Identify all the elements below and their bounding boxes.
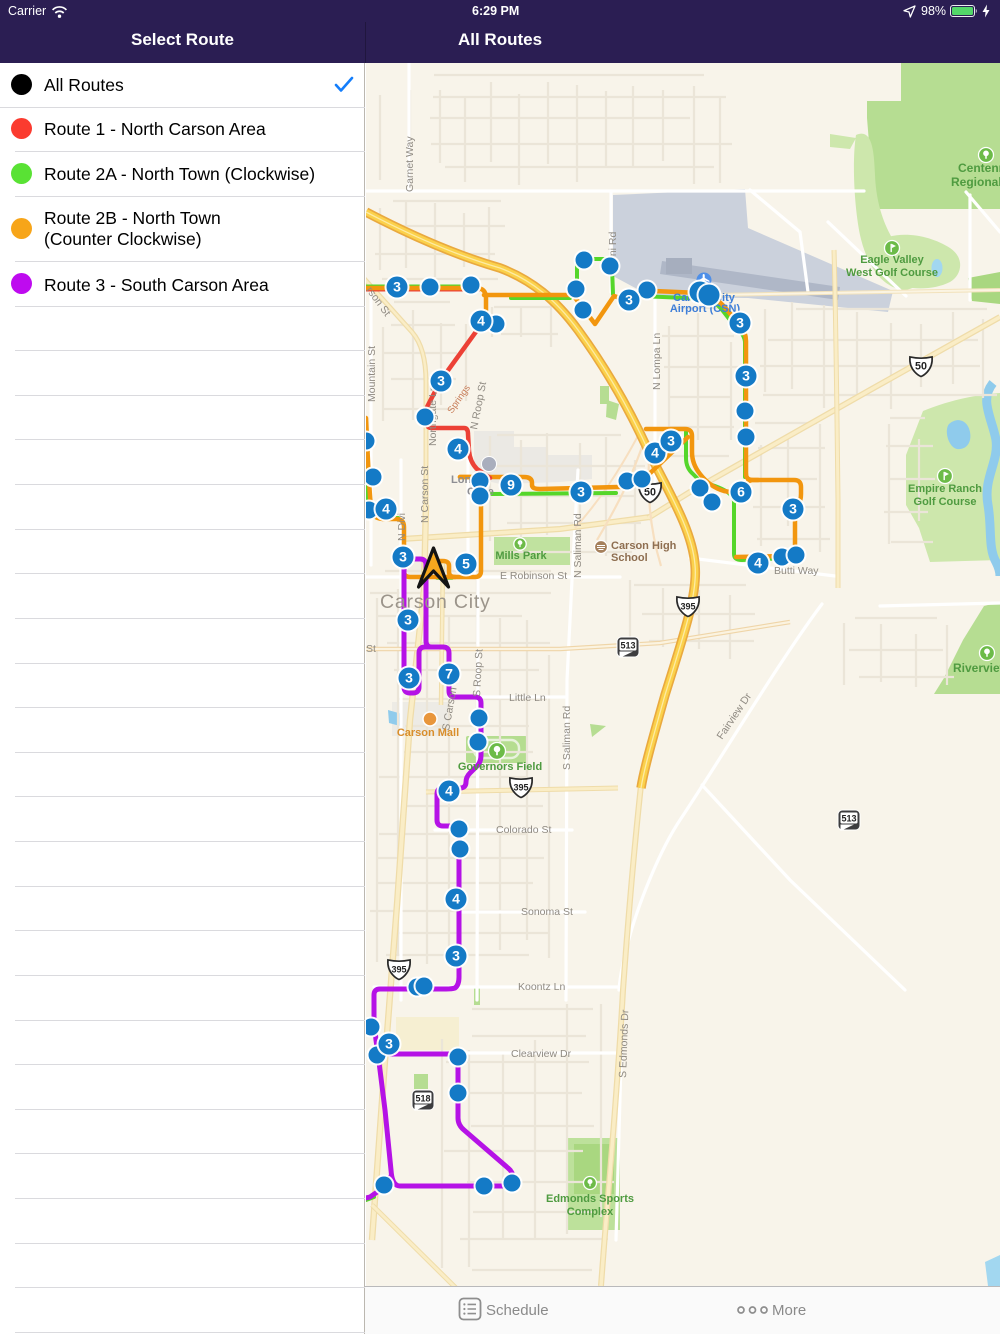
svg-text:3: 3: [399, 549, 407, 565]
svg-text:Regional P: Regional P: [951, 175, 1000, 189]
svg-text:4: 4: [454, 441, 462, 457]
svg-text:4: 4: [382, 501, 390, 517]
svg-text:5: 5: [462, 556, 470, 572]
svg-text:Complex: Complex: [567, 1206, 614, 1218]
svg-text:N Saliman Rd: N Saliman Rd: [572, 513, 584, 578]
svg-text:4: 4: [445, 783, 453, 799]
svg-text:3: 3: [667, 433, 675, 449]
svg-text:513: 513: [620, 641, 635, 651]
svg-text:518: 518: [415, 1094, 430, 1104]
svg-text:Carson High: Carson High: [611, 540, 677, 552]
svg-text:3: 3: [437, 373, 445, 389]
svg-text:3: 3: [404, 612, 412, 628]
svg-text:3: 3: [789, 501, 797, 517]
svg-text:Little Ln: Little Ln: [509, 692, 546, 704]
svg-text:Koontz Ln: Koontz Ln: [518, 981, 565, 993]
svg-text:Empire Ranch: Empire Ranch: [908, 483, 982, 495]
svg-text:3: 3: [385, 1036, 393, 1052]
svg-text:E Robinson St: E Robinson St: [500, 570, 567, 582]
svg-text:3: 3: [736, 315, 744, 331]
svg-text:S Edmonds Dr: S Edmonds Dr: [617, 1009, 631, 1078]
svg-text:3: 3: [393, 279, 401, 295]
svg-text:Garnet Way: Garnet Way: [404, 136, 416, 192]
svg-text:395: 395: [680, 601, 695, 611]
svg-text:3: 3: [577, 484, 585, 500]
svg-text:4: 4: [754, 555, 762, 571]
svg-text:School: School: [611, 552, 648, 564]
svg-text:6: 6: [737, 484, 745, 500]
svg-text:Governors Field: Governors Field: [458, 761, 542, 773]
svg-text:Centenni: Centenni: [958, 161, 1000, 175]
svg-text:3: 3: [742, 368, 750, 384]
svg-text:395: 395: [391, 964, 406, 974]
svg-text:4: 4: [651, 445, 659, 461]
svg-text:3: 3: [452, 948, 460, 964]
svg-text:Golf Course: Golf Course: [914, 496, 977, 508]
svg-text:N Carson St: N Carson St: [419, 466, 431, 523]
svg-text:Colorado St: Colorado St: [496, 824, 552, 836]
svg-text:3: 3: [625, 292, 633, 308]
svg-text:50: 50: [915, 360, 927, 372]
svg-text:513: 513: [841, 814, 856, 824]
svg-text:4: 4: [477, 313, 485, 329]
svg-text:S Saliman Rd: S Saliman Rd: [561, 706, 573, 770]
svg-text:Carson City: Carson City: [380, 591, 491, 613]
svg-text:Riverview: Riverview: [953, 661, 1000, 675]
svg-text:West Golf Course: West Golf Course: [846, 267, 938, 279]
svg-text:Edmonds Sports: Edmonds Sports: [546, 1193, 634, 1205]
svg-text:3: 3: [405, 670, 413, 686]
svg-text:Mills Park: Mills Park: [495, 550, 547, 562]
svg-text:N Lompa Ln: N Lompa Ln: [651, 333, 663, 390]
svg-text:Sonoma St: Sonoma St: [521, 906, 573, 918]
svg-text:St: St: [366, 643, 376, 655]
svg-text:N Divi: N Divi: [396, 513, 408, 541]
svg-text:4: 4: [452, 891, 460, 907]
svg-text:Clearview Dr: Clearview Dr: [511, 1048, 572, 1060]
svg-text:S Roop St: S Roop St: [471, 649, 485, 698]
svg-text:9: 9: [507, 477, 515, 493]
svg-text:395: 395: [513, 782, 528, 792]
svg-text:Mountain St: Mountain St: [366, 346, 378, 402]
svg-text:Carson Mall: Carson Mall: [397, 727, 459, 739]
svg-text:7: 7: [445, 666, 453, 682]
